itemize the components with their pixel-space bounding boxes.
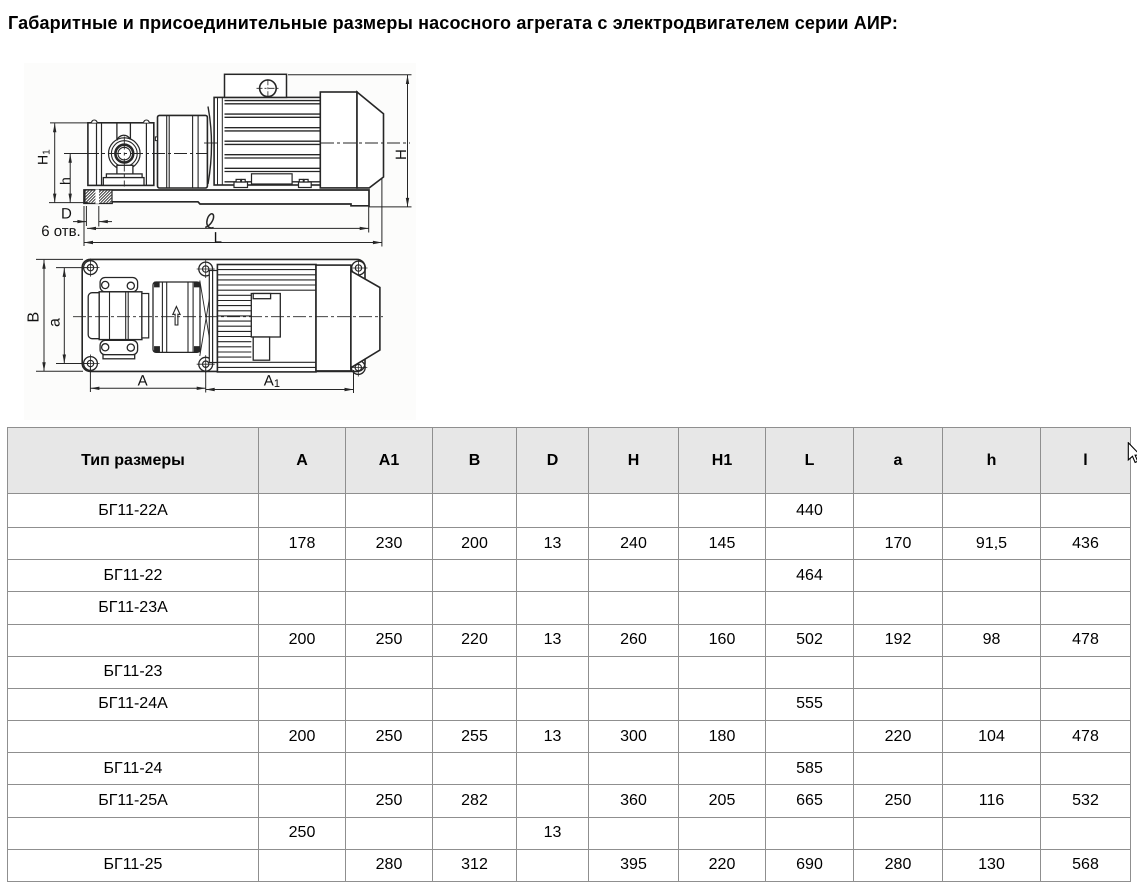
svg-text:B: B [26,312,43,323]
svg-text:6 отв.: 6 отв. [41,223,81,240]
svg-text:h: h [57,177,73,185]
svg-text:a: a [47,318,64,327]
svg-text:D: D [61,206,72,223]
svg-text:H: H [393,149,410,160]
svg-text:A: A [138,373,148,390]
svg-text:L: L [214,230,222,247]
